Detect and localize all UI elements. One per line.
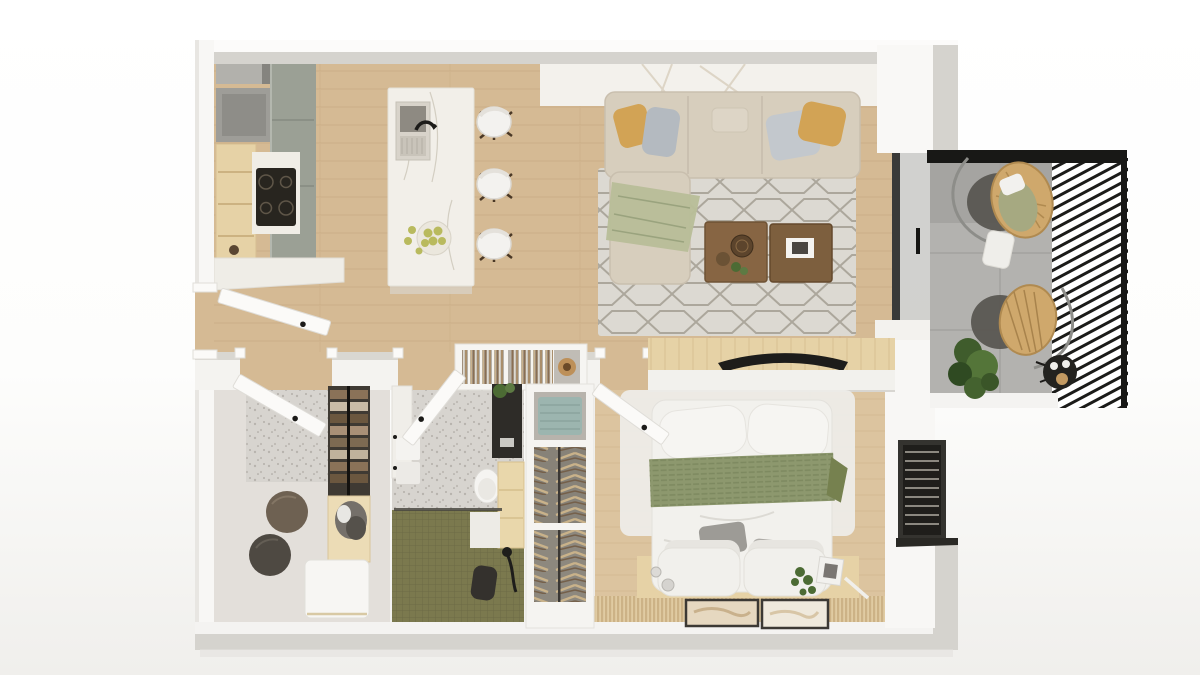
- towel: [396, 462, 420, 484]
- cup: [1050, 362, 1058, 370]
- top-right-wall: [877, 45, 933, 153]
- duvet-fold: [746, 403, 830, 460]
- bedroom-window: [896, 440, 958, 547]
- gray-pillow-left: [641, 106, 681, 158]
- shower-glass-divider: [394, 508, 502, 511]
- bookshelf-console: [455, 344, 587, 390]
- bowl: [229, 245, 239, 255]
- floorplan-render: [0, 0, 1200, 675]
- shower-bench: [470, 512, 500, 548]
- shower-head: [502, 547, 512, 557]
- door-handle-bar: [916, 228, 920, 254]
- books: [462, 350, 504, 384]
- floorplan-svg: [0, 0, 1200, 675]
- glass-vase: [651, 567, 661, 577]
- plan-shadow: [200, 649, 953, 657]
- framed-artworks-on-mat: [686, 600, 828, 628]
- duvet-fold: [658, 404, 749, 461]
- bar-stools: [477, 107, 512, 262]
- books: [511, 350, 553, 384]
- kitchen-island: [388, 88, 474, 294]
- living-room: [598, 92, 860, 336]
- clothes-shelves: [328, 386, 370, 496]
- glass-door-frame: [892, 153, 900, 345]
- entry-opening: [195, 290, 214, 352]
- balcony: [927, 150, 1128, 408]
- right-outer-wall: [933, 545, 958, 645]
- railing-edge: [1121, 150, 1127, 408]
- white-dresser: [305, 560, 369, 618]
- soap-tray: [500, 438, 514, 447]
- bedroom-doorway: [600, 352, 648, 390]
- vanity-plant: [493, 384, 507, 398]
- pergola-bar: [927, 150, 1125, 163]
- tv-ledge: [648, 370, 895, 392]
- wood-tray: [1056, 373, 1068, 385]
- beige-pillow: [712, 108, 748, 132]
- glass-vase: [662, 579, 674, 591]
- towel-hook: [393, 435, 397, 439]
- balcony-bottom-ledge: [930, 393, 1058, 408]
- wood-shelf: [498, 462, 524, 548]
- cup: [1062, 360, 1070, 368]
- tv-wall: [648, 338, 895, 392]
- green-knit-blanket: [649, 452, 849, 509]
- towel-hook: [393, 466, 397, 470]
- table-plant: [731, 262, 741, 272]
- wardrobe-column: [526, 384, 594, 628]
